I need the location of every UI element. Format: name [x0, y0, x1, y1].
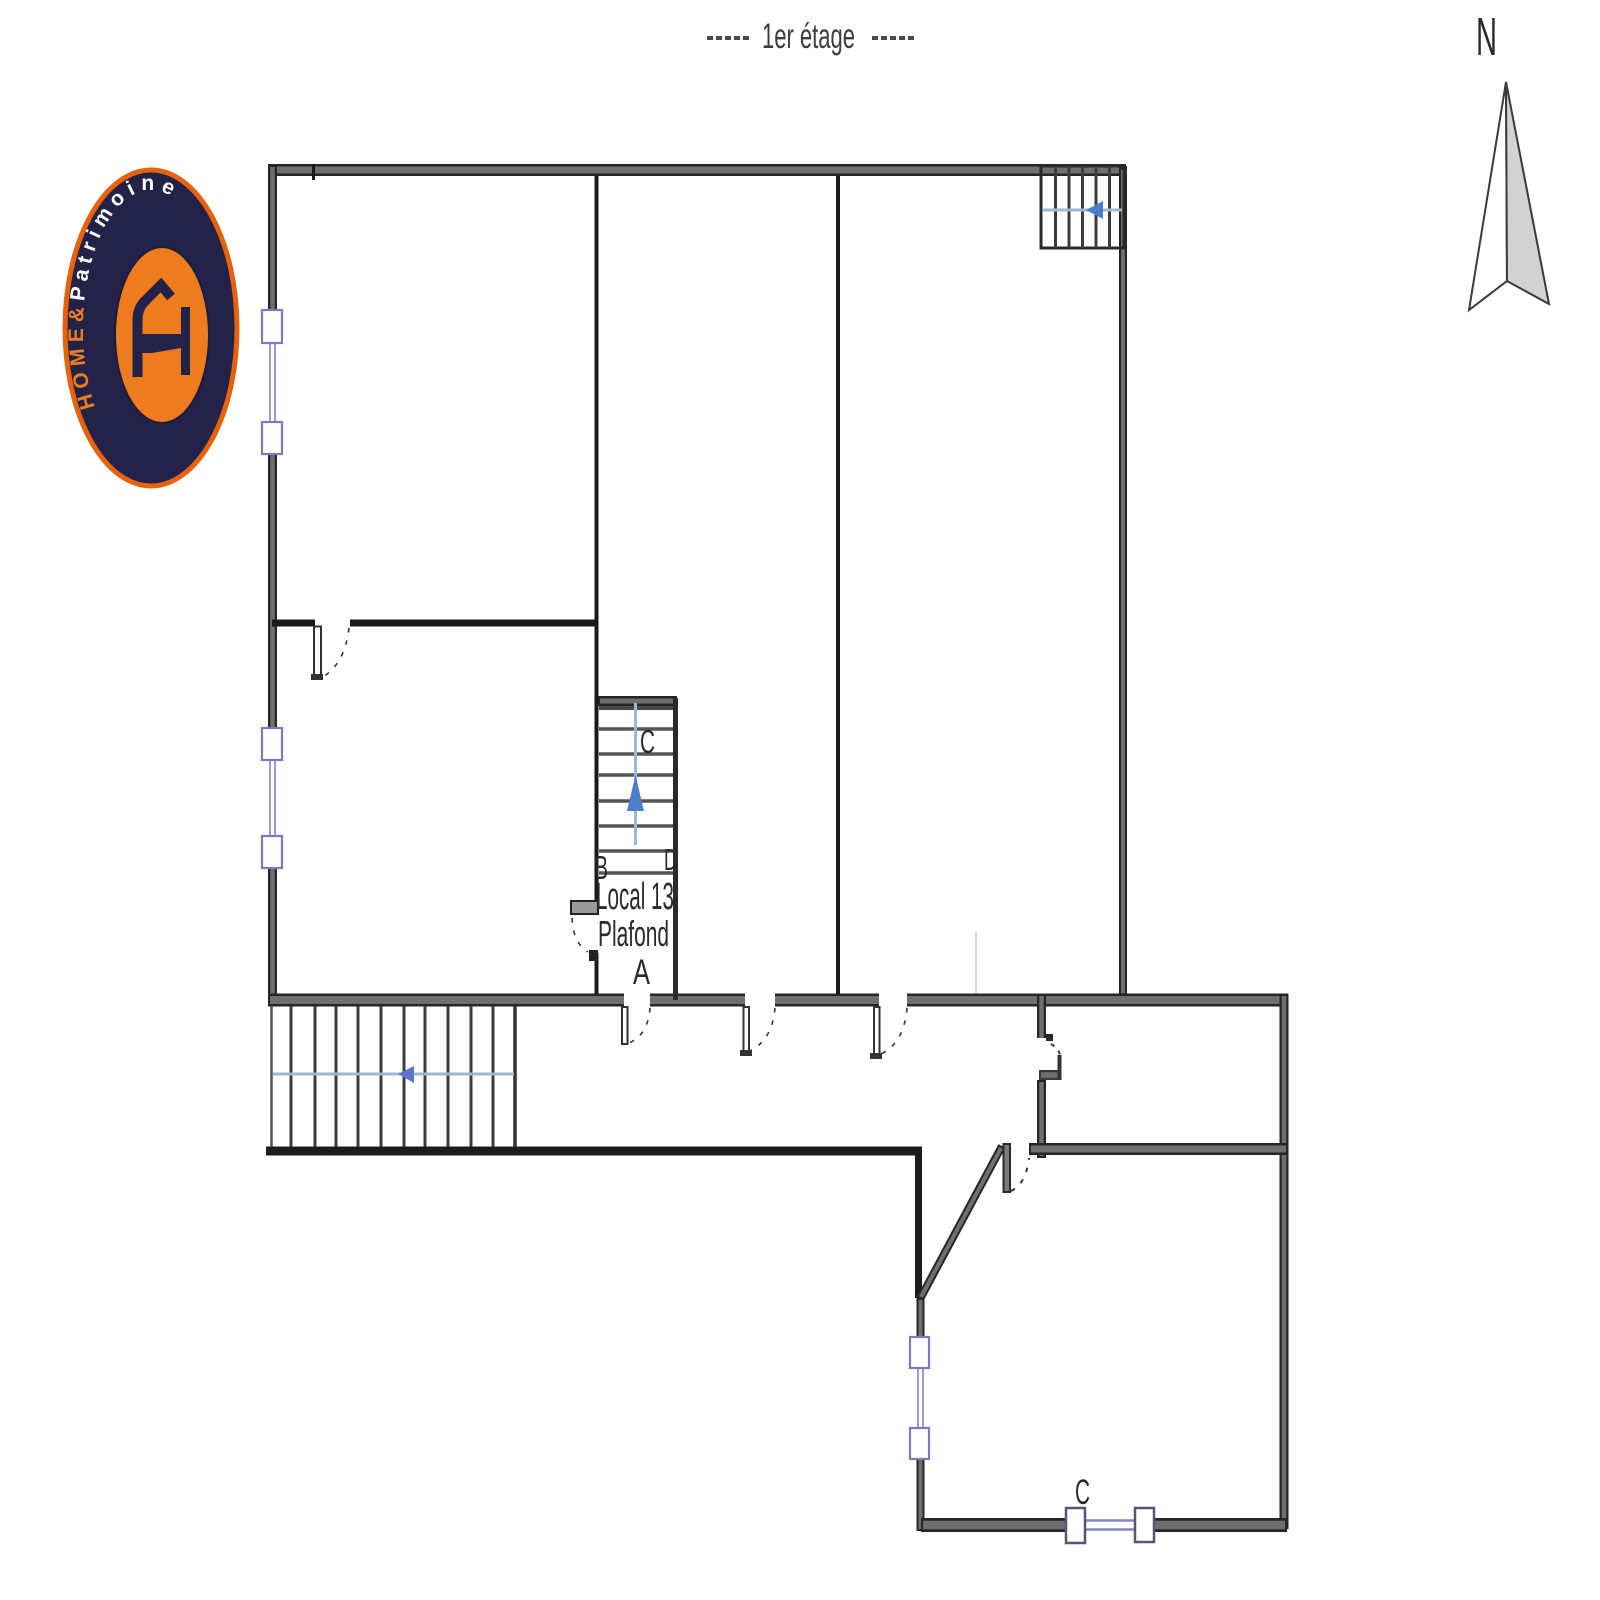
svg-text:N: N — [1476, 7, 1497, 67]
svg-text:A: A — [633, 953, 650, 992]
svg-text:1er étage: 1er étage — [762, 17, 855, 56]
svg-text:Local 13: Local 13 — [596, 876, 674, 918]
svg-text:Plafond: Plafond — [598, 913, 669, 954]
svg-text:C: C — [1075, 1473, 1090, 1512]
svg-text:C: C — [640, 723, 655, 760]
svg-text:D: D — [664, 842, 677, 877]
